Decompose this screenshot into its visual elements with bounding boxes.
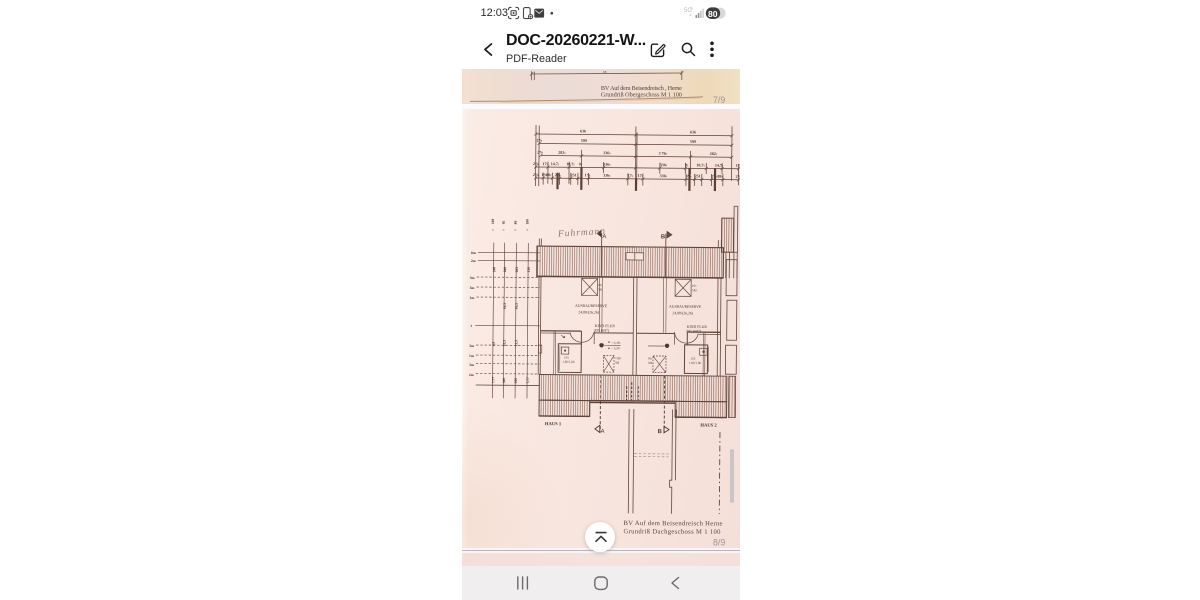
svg-text:3m: 3m xyxy=(470,275,475,279)
svg-text:130: 130 xyxy=(527,266,531,272)
svg-text:2825: 2825 xyxy=(558,149,566,154)
svg-text:1%: 1% xyxy=(711,173,717,178)
svg-text:3365: 3365 xyxy=(603,161,611,166)
svg-text:AUSBAURESERVE: AUSBAURESERVE xyxy=(669,304,702,308)
svg-text:3365: 3365 xyxy=(660,173,668,178)
svg-text:3m: 3m xyxy=(469,362,474,366)
svg-text:8/9: 8/9 xyxy=(713,537,725,547)
svg-text:16,5: 16,5 xyxy=(503,302,507,309)
svg-text:5G: 5G xyxy=(684,8,692,14)
svg-text:091: 091 xyxy=(692,283,697,287)
svg-text:Grundriß Dachgeschoss M: Grundriß Dachgeschoss M 1 100 xyxy=(623,528,721,536)
svg-text:B: B xyxy=(658,429,662,435)
svg-text:1m: 1m xyxy=(469,353,474,357)
svg-text:=: = xyxy=(492,228,494,232)
svg-text:995 (697): 995 (697) xyxy=(686,329,702,333)
svg-text:HAUS 2: HAUS 2 xyxy=(700,422,717,427)
svg-text:8%: 8% xyxy=(686,173,692,178)
svg-text:3m: 3m xyxy=(469,343,474,347)
svg-text:7,77: 7,77 xyxy=(526,376,530,383)
svg-text:180: 180 xyxy=(491,218,495,224)
svg-text:16,5: 16,5 xyxy=(515,302,519,309)
svg-text:1,86/1,86: 1,86/1,86 xyxy=(689,360,701,365)
svg-text:260: 260 xyxy=(503,266,507,272)
svg-text:2%: 2% xyxy=(555,172,561,177)
svg-text:10,5: 10,5 xyxy=(502,339,506,346)
svg-text:3 765: 3 765 xyxy=(659,150,668,155)
svg-text:5M: 5M xyxy=(615,360,620,364)
svg-text:1%: 1% xyxy=(585,172,591,177)
svg-text:175: 175 xyxy=(736,162,740,167)
svg-text:2m: 2m xyxy=(469,372,474,376)
svg-text:885: 885 xyxy=(546,172,552,177)
svg-text:14,75: 14,75 xyxy=(715,162,724,167)
svg-text:2%: 2% xyxy=(536,137,542,142)
svg-text:4,0: 4,0 xyxy=(492,341,496,346)
svg-text:180: 180 xyxy=(525,218,529,224)
svg-text:BV Auf dem Beisendreisch H: BV Auf dem Beisendreisch Herne xyxy=(623,520,722,528)
svg-text:5M: 5M xyxy=(648,360,653,364)
svg-text:95: 95 xyxy=(502,220,506,224)
svg-text:2%: 2% xyxy=(533,171,539,176)
svg-text:599: 599 xyxy=(581,137,587,142)
svg-text:3m: 3m xyxy=(470,285,475,289)
svg-text:175: 175 xyxy=(542,161,548,166)
svg-text:14,75: 14,75 xyxy=(551,161,560,166)
svg-text:636: 636 xyxy=(690,129,696,134)
svg-text:636: 636 xyxy=(580,128,586,133)
svg-text:0m: 0m xyxy=(471,250,476,254)
svg-text:+ 6,485: + 6,485 xyxy=(611,340,621,345)
svg-text:24,88/(26,26): 24,88/(26,26) xyxy=(672,311,693,316)
svg-text:3365: 3365 xyxy=(603,172,611,177)
svg-text:251: 251 xyxy=(571,172,577,177)
svg-text:2%: 2% xyxy=(736,173,740,178)
svg-text:300: 300 xyxy=(514,377,518,383)
svg-text:1m: 1m xyxy=(470,295,475,299)
svg-text:5M: 5M xyxy=(598,287,603,291)
svg-text:68: 68 xyxy=(603,70,607,74)
svg-text:1,86/1,86: 1,86/1,86 xyxy=(562,359,574,364)
svg-text:251: 251 xyxy=(695,173,701,178)
svg-text:2m: 2m xyxy=(471,258,476,262)
svg-text:1: 1 xyxy=(470,323,472,327)
svg-text:=: = xyxy=(503,228,505,232)
svg-text:2%: 2% xyxy=(533,160,539,165)
svg-text:175: 175 xyxy=(628,172,634,177)
svg-text:240: 240 xyxy=(492,266,496,272)
svg-text:2825: 2825 xyxy=(710,151,718,156)
svg-text:B: B xyxy=(661,234,665,240)
svg-text:091: 091 xyxy=(648,356,653,360)
svg-text:95: 95 xyxy=(685,162,689,167)
svg-text:3365: 3365 xyxy=(603,150,611,155)
svg-text:+ 5,201: + 5,201 xyxy=(611,346,621,351)
svg-text:091: 091 xyxy=(598,283,603,287)
svg-text:86: 86 xyxy=(514,220,518,224)
svg-text:5M: 5M xyxy=(692,288,697,292)
svg-text:10,75: 10,75 xyxy=(566,161,575,166)
svg-text:95: 95 xyxy=(579,161,583,166)
svg-text:7,77: 7,77 xyxy=(491,376,495,383)
svg-text:13,5: 13,5 xyxy=(514,339,518,346)
svg-text:7/9: 7/9 xyxy=(713,95,725,104)
svg-text:3365: 3365 xyxy=(660,162,668,167)
svg-text:=: = xyxy=(526,228,528,232)
svg-text:2%: 2% xyxy=(537,149,543,154)
svg-text:995 (697): 995 (697) xyxy=(594,328,610,332)
svg-text:=: = xyxy=(514,228,516,232)
svg-text:A: A xyxy=(601,428,605,434)
svg-text:24,88/(26,26): 24,88/(26,26) xyxy=(578,310,599,315)
svg-text:10,75: 10,75 xyxy=(696,162,705,167)
svg-text:599: 599 xyxy=(690,138,696,143)
svg-text:263: 263 xyxy=(515,266,519,272)
svg-text:AUSBAURESERVE: AUSBAURESERVE xyxy=(575,303,608,307)
svg-text:Fuhrmann: Fuhrmann xyxy=(557,226,607,239)
svg-text:300: 300 xyxy=(502,377,506,383)
svg-text:80: 80 xyxy=(708,9,718,19)
svg-text:HAUS 1: HAUS 1 xyxy=(545,421,562,426)
svg-text:885: 885 xyxy=(717,173,723,178)
